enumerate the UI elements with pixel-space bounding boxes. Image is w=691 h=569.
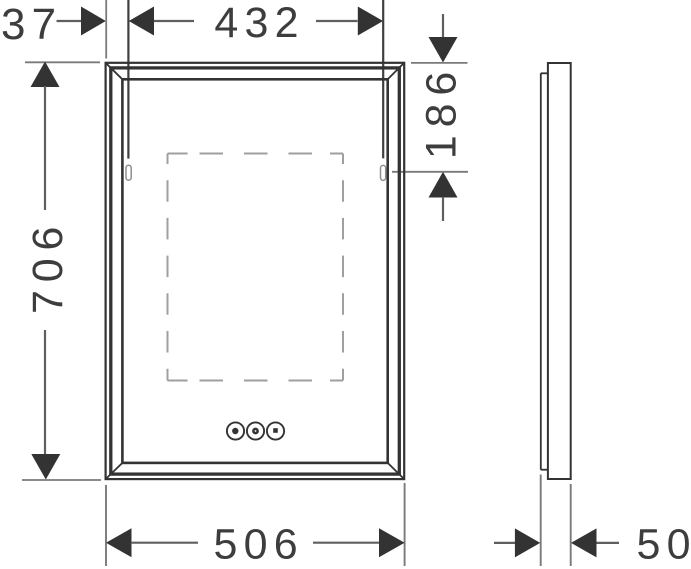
svg-text:506: 506	[214, 521, 304, 569]
svg-text:432: 432	[214, 0, 304, 47]
svg-text:186: 186	[417, 64, 465, 159]
svg-text:37: 37	[1, 0, 62, 49]
svg-text:706: 706	[24, 219, 72, 314]
svg-text:50: 50	[636, 521, 691, 569]
